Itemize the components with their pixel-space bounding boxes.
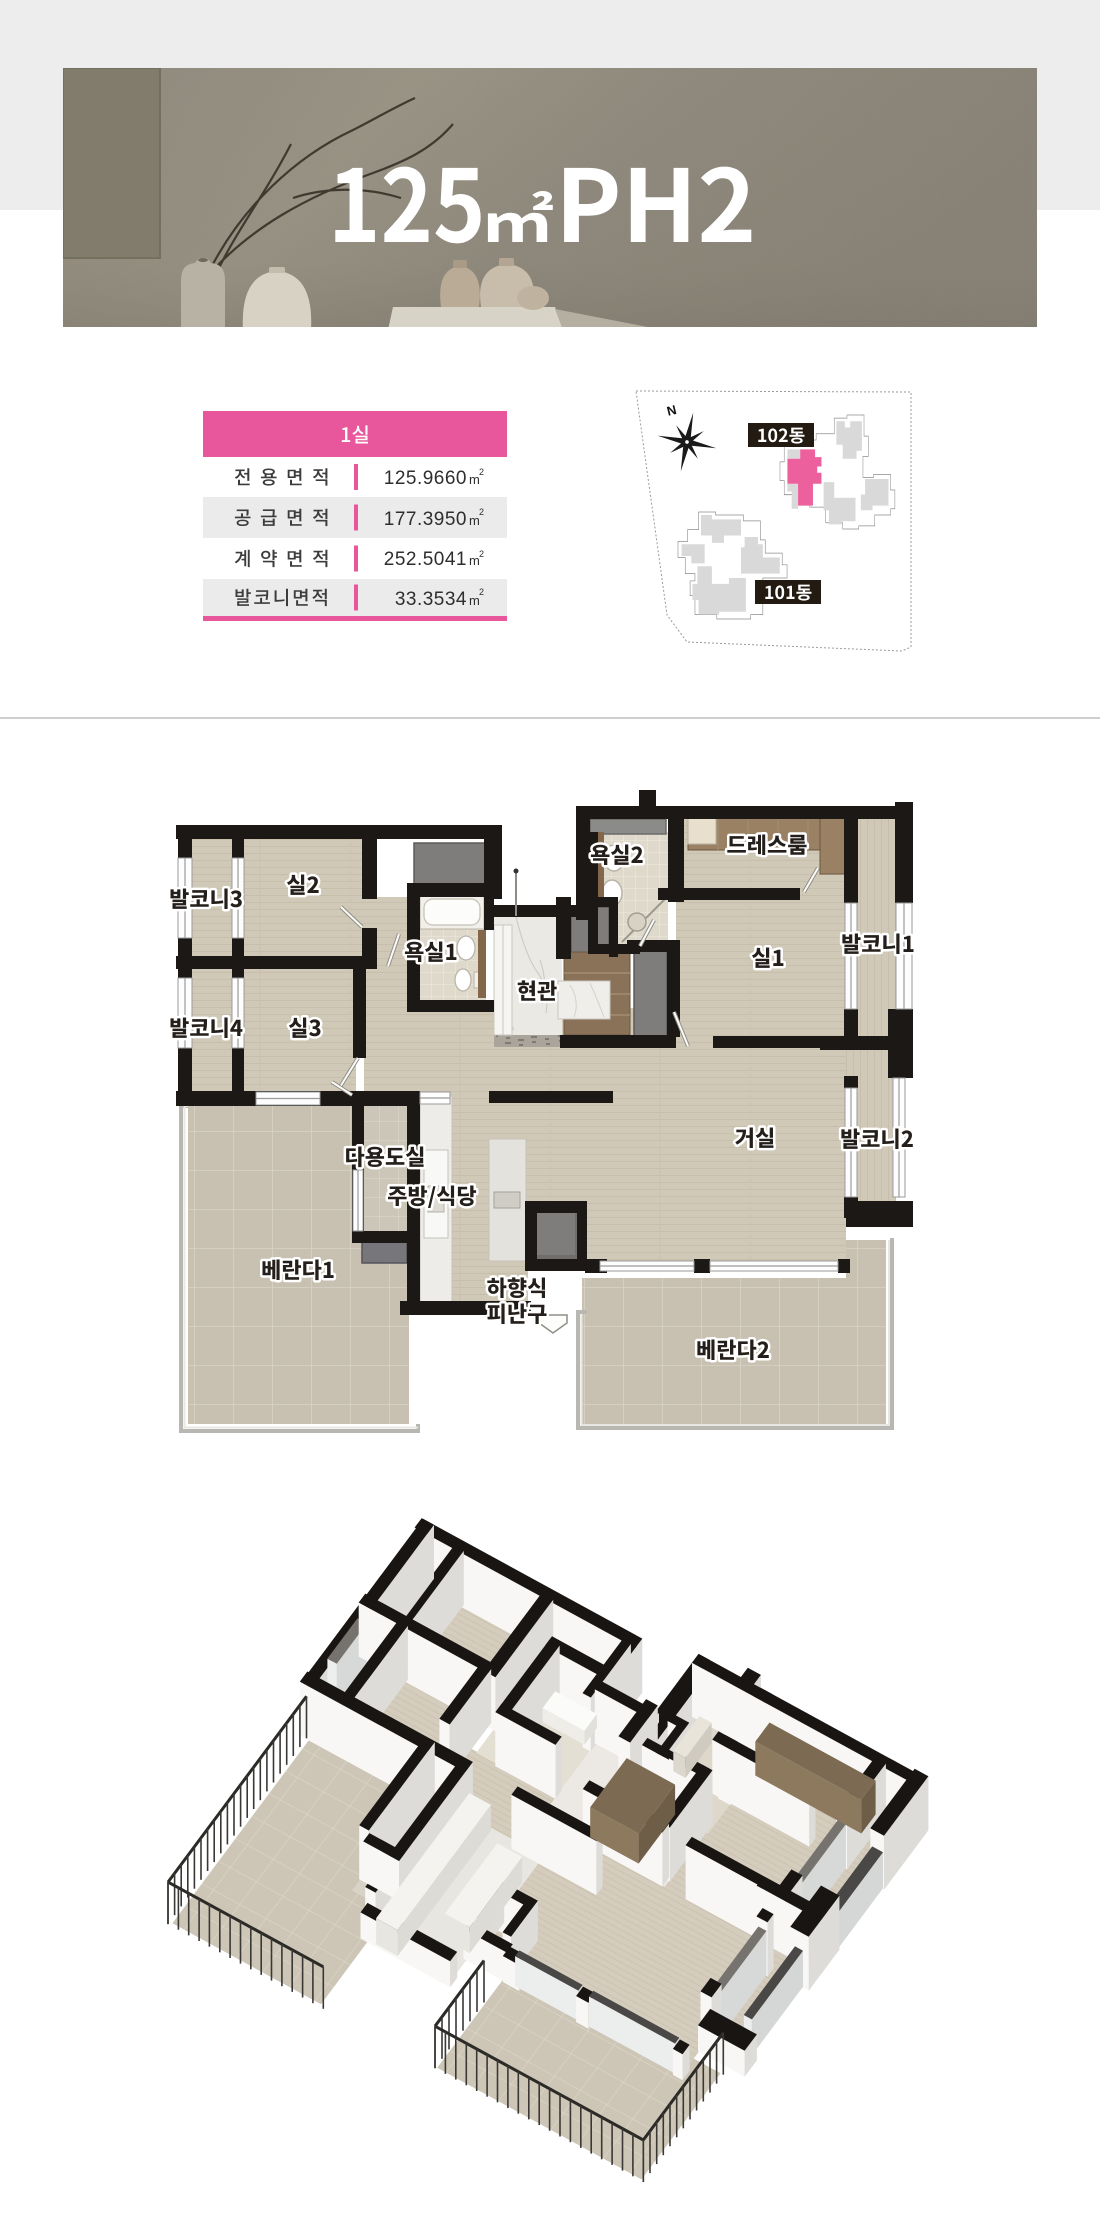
svg-text:2: 2 [479,467,484,477]
svg-text:2: 2 [479,549,484,559]
svg-text:177.3950: 177.3950 [384,509,467,530]
svg-text:252.5041: 252.5041 [384,549,467,570]
svg-text:125.9660: 125.9660 [384,468,467,489]
svg-text:2: 2 [479,587,484,597]
svg-text:2: 2 [479,507,484,517]
svg-text:33.3534: 33.3534 [395,589,467,610]
